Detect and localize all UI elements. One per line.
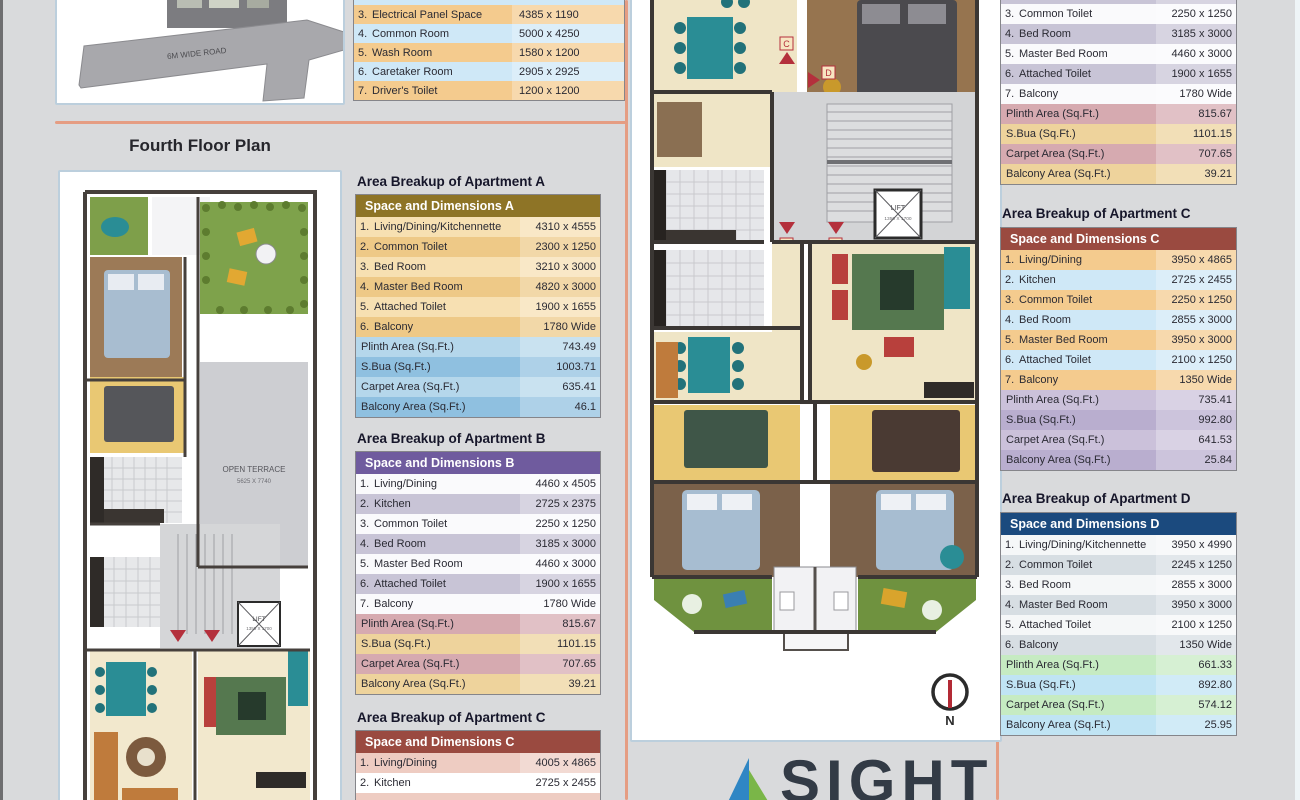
summary-row: Balcony Area (Sq.Ft.) 25.84 (1001, 450, 1236, 470)
sofa (94, 732, 118, 800)
table-row: 7. Balcony 1780 Wide (356, 594, 600, 614)
row-number: 5. (354, 47, 372, 59)
apartment-d-title: Area Breakup of Apartment D (1002, 491, 1191, 506)
open-terrace-label: OPEN TERRACE (223, 465, 286, 474)
row-label: Kitchen (374, 777, 520, 789)
kitchen-top (652, 170, 764, 242)
summary-label: S.Bua (Sq.Ft.) (356, 361, 520, 373)
row-number: 2. (356, 241, 374, 253)
summary-value: 574.12 (1156, 695, 1236, 715)
row-number: 5. (1001, 619, 1019, 631)
table-row: 1. Living/Dining 3950 x 4865 (1001, 250, 1236, 270)
table-row: 4. Master Bed Room 4820 x 3000 (356, 277, 600, 297)
lift-icon: LIFT 1350 X 1700 (238, 602, 280, 646)
summary-label: S.Bua (Sq.Ft.) (1001, 679, 1156, 691)
row-number: 7. (354, 85, 372, 97)
tv-unit (924, 382, 974, 398)
wood-floor (657, 102, 702, 157)
row-number: 1. (1001, 254, 1019, 266)
row-dimension: 2725 x 2375 (520, 494, 600, 514)
living-lower-right (810, 242, 977, 402)
row-dimension: 2725 x 2455 (1156, 270, 1236, 290)
summary-value: 1101.15 (1156, 124, 1236, 144)
sofa (656, 342, 678, 398)
table-row: 5. Master Bed Room 3950 x 3000 (1001, 330, 1236, 350)
summary-row: S.Bua (Sq.Ft.) 1101.15 (356, 634, 600, 654)
apartment-c-header: Space and Dimensions C (1001, 228, 1236, 250)
summary-value: 46.1 (520, 397, 600, 417)
row-dimension: 2725 x 2455 (520, 773, 600, 793)
cut-row (356, 793, 600, 800)
row-number: 1. (356, 757, 374, 769)
summary-row: Balcony Area (Sq.Ft.) 39.21 (1001, 164, 1236, 184)
row-number: 2. (356, 777, 374, 789)
row-label: Living/Dining (374, 478, 520, 490)
row-label: Electrical Panel Space (372, 9, 512, 21)
row-dimension: 1200 x 1200 (512, 81, 624, 100)
table-row: 1. Living/Dining/Kitchennette 3950 x 499… (1001, 535, 1236, 555)
summary-row: Balcony Area (Sq.Ft.) 39.21 (356, 674, 600, 694)
amenities-rows: 3. Electrical Panel Space 4385 x 1190 4.… (354, 5, 624, 100)
apartment-b-cont-summary: Plinth Area (Sq.Ft.) 815.67 S.Bua (Sq.Ft… (1001, 104, 1236, 184)
summary-value: 815.67 (1156, 104, 1236, 124)
summary-value: 635.41 (520, 377, 600, 397)
row-dimension: 2855 x 3000 (1156, 575, 1236, 595)
table-row: 4. Bed Room 3185 x 3000 (356, 534, 600, 554)
table-row: 2. Kitchen 2725 x 2455 (356, 773, 600, 793)
bench (288, 650, 308, 706)
row-label: Balcony (374, 321, 520, 333)
summary-value: 992.80 (1156, 410, 1236, 430)
table-row: 1. Living/Dining/Kitchennette 4310 x 455… (356, 217, 600, 237)
row-dimension: 3210 x 3000 (520, 257, 600, 277)
summary-value: 641.53 (1156, 430, 1236, 450)
table-row: 6. Attached Toilet 2100 x 1250 (1001, 350, 1236, 370)
bed-brown (872, 410, 960, 472)
row-label: Master Bed Room (374, 558, 520, 570)
apartment-d-header: Space and Dimensions D (1001, 513, 1236, 535)
row-label: Balcony (1019, 88, 1156, 100)
row-label: Balcony (374, 598, 520, 610)
apartment-c-rows: 1. Living/Dining 3950 x 4865 2. Kitchen … (1001, 250, 1236, 390)
logo-text: SIGHT (780, 752, 993, 800)
row-dimension: 1780 Wide (520, 594, 600, 614)
row-dimension: 4005 x 4865 (520, 753, 600, 773)
row-label: Attached Toilet (1019, 619, 1156, 631)
coffee-table (238, 692, 266, 720)
page-left-edge (0, 0, 3, 800)
row-number: 5. (356, 301, 374, 313)
summary-value: 25.95 (1156, 715, 1236, 735)
summary-row: Carpet Area (Sq.Ft.) 707.65 (356, 654, 600, 674)
apartment-d-table: Space and Dimensions D 1. Living/Dining/… (1000, 512, 1237, 736)
row-label: Kitchen (374, 498, 520, 510)
summary-value: 661.33 (1156, 655, 1236, 675)
apartment-b-summary: Plinth Area (Sq.Ft.) 815.67 S.Bua (Sq.Ft… (356, 614, 600, 694)
row-dimension: 3950 x 4990 (1156, 535, 1236, 555)
row-number: 1. (356, 221, 374, 233)
row-dimension: 1900 x 1655 (520, 574, 600, 594)
summary-value: 39.21 (520, 674, 600, 694)
accent-chair (832, 290, 848, 320)
amenities-table: 3. Electrical Panel Space 4385 x 1190 4.… (353, 0, 625, 101)
row-number: 4. (1001, 599, 1019, 611)
table-row: 2. Kitchen 2725 x 2375 (356, 494, 600, 514)
tv-unit (256, 772, 306, 788)
dining-table (688, 337, 730, 393)
table-row: 1. Living/Dining 4460 x 4505 (356, 474, 600, 494)
svg-text:1350 X 1700: 1350 X 1700 (884, 216, 912, 222)
table-row: 2. Common Toilet 2300 x 1250 (356, 237, 600, 257)
table-row: 7. Balcony 1350 Wide (1001, 370, 1236, 390)
row-dimension: 1350 Wide (1156, 635, 1236, 655)
summary-label: Carpet Area (Sq.Ft.) (356, 381, 520, 393)
apartment-c-summary: Plinth Area (Sq.Ft.) 735.41 S.Bua (Sq.Ft… (1001, 390, 1236, 470)
row-label: Balcony (1019, 374, 1156, 386)
table-row: 6. Caretaker Room 2905 x 2925 (354, 62, 624, 81)
row-number: 7. (1001, 88, 1019, 100)
row-label: Attached Toilet (1019, 68, 1156, 80)
row-label: Common Room (372, 28, 512, 40)
row-dimension: 1350 Wide (1156, 370, 1236, 390)
north-label: N (945, 713, 954, 728)
table-row: 5. Attached Toilet 2100 x 1250 (1001, 615, 1236, 635)
brochure-page: 6M WIDE ROAD 3. Electrical Panel Space 4… (0, 0, 1300, 800)
table-row: 1. Living/Dining 4005 x 4865 (356, 753, 600, 773)
summary-row: Plinth Area (Sq.Ft.) 735.41 (1001, 390, 1236, 410)
table-row: 3. Bed Room 2855 x 3000 (1001, 575, 1236, 595)
summary-label: Plinth Area (Sq.Ft.) (1001, 108, 1156, 120)
summary-value: 735.41 (1156, 390, 1236, 410)
open-terrace-dim: 5625 X 7740 (237, 479, 272, 485)
row-label: Common Toilet (374, 518, 520, 530)
svg-text:1350 X 1700: 1350 X 1700 (246, 626, 272, 631)
row-label: Living/Dining/Kitchennette (374, 221, 520, 233)
row-label: Kitchen (1019, 274, 1156, 286)
apartment-a-summary: Plinth Area (Sq.Ft.) 743.49 S.Bua (Sq.Ft… (356, 337, 600, 417)
row-number: 3. (356, 518, 374, 530)
row-dimension: 5000 x 4250 (512, 24, 624, 43)
apartment-a-header: Space and Dimensions A (356, 195, 600, 217)
accent-chair (832, 254, 848, 284)
row-dimension: 3950 x 3000 (1156, 330, 1236, 350)
logo-mark-icon (724, 758, 772, 800)
section-divider (55, 121, 628, 124)
row-dimension: 2300 x 1250 (520, 237, 600, 257)
row-label: Bed Room (1019, 579, 1156, 591)
summary-row: Carpet Area (Sq.Ft.) 641.53 (1001, 430, 1236, 450)
row-number: 3. (1001, 294, 1019, 306)
column-divider-left (625, 0, 628, 800)
row-number: 6. (356, 578, 374, 590)
summary-value: 815.67 (520, 614, 600, 634)
terrace-garden (200, 202, 308, 314)
summary-row: Balcony Area (Sq.Ft.) 46.1 (356, 397, 600, 417)
summary-row: Carpet Area (Sq.Ft.) 707.65 (1001, 144, 1236, 164)
summary-label: Plinth Area (Sq.Ft.) (356, 618, 520, 630)
fourth-floor-plan-image: OPEN TERRACE 5625 X 7740 LIFT (60, 172, 340, 800)
summary-value: 25.84 (1156, 450, 1236, 470)
kitchen-bottom (652, 250, 764, 328)
row-dimension: 2250 x 1250 (520, 514, 600, 534)
row-dimension: 4460 x 3000 (1156, 44, 1236, 64)
accent-chair (204, 677, 216, 727)
apartment-c-mid-rows: 1. Living/Dining 4005 x 4865 2. Kitchen … (356, 753, 600, 793)
summary-label: Carpet Area (Sq.Ft.) (356, 658, 520, 670)
table-row: 3. Common Toilet 2250 x 1250 (1001, 290, 1236, 310)
row-dimension: 1900 x 1655 (520, 297, 600, 317)
summary-label: Balcony Area (Sq.Ft.) (1001, 168, 1156, 180)
summary-label: S.Bua (Sq.Ft.) (1001, 414, 1156, 426)
bed-dark (104, 386, 174, 442)
compass-icon: N (933, 675, 967, 728)
coffee-table (880, 270, 914, 310)
table-row: 2. Common Toilet 2245 x 1250 (1001, 555, 1236, 575)
row-label: Common Toilet (1019, 294, 1156, 306)
apartment-c-mid-header: Space and Dimensions C (356, 731, 600, 753)
row-number: 1. (356, 478, 374, 490)
site-plan-box: 6M WIDE ROAD (55, 0, 345, 105)
row-number: 5. (1001, 48, 1019, 60)
row-number: 7. (1001, 374, 1019, 386)
apartment-c-mid-title: Area Breakup of Apartment C (357, 710, 546, 725)
summary-value: 707.65 (520, 654, 600, 674)
row-dimension: 3185 x 3000 (520, 534, 600, 554)
row-dimension: 4460 x 3000 (520, 554, 600, 574)
summary-label: S.Bua (Sq.Ft.) (1001, 128, 1156, 140)
living-room-right (198, 650, 310, 800)
north-needle (948, 680, 952, 708)
row-number: 3. (356, 261, 374, 273)
stair-hall: LIFT 1350 X 1700 (160, 524, 280, 648)
table-row: 4. Bed Room 3185 x 3000 (1001, 24, 1236, 44)
summary-label: Balcony Area (Sq.Ft.) (1001, 719, 1156, 731)
row-dimension: 2855 x 3000 (1156, 310, 1236, 330)
table-row: 7. Balcony 1780 Wide (1001, 84, 1236, 104)
row-dimension: 2245 x 1250 (1156, 555, 1236, 575)
summary-label: Carpet Area (Sq.Ft.) (1001, 699, 1156, 711)
summary-value: 1003.71 (520, 357, 600, 377)
summary-row: S.Bua (Sq.Ft.) 992.80 (1001, 410, 1236, 430)
sofa (122, 788, 178, 800)
table-row: 5. Master Bed Room 4460 x 3000 (1001, 44, 1236, 64)
page-title: Fourth Floor Plan (55, 136, 345, 156)
table-row: 6. Balcony 1350 Wide (1001, 635, 1236, 655)
bench (944, 247, 970, 309)
row-dimension: 3950 x 4865 (1156, 250, 1236, 270)
svg-text:LIFT: LIFT (252, 616, 265, 623)
table-row: 3. Electrical Panel Space 4385 x 1190 (354, 5, 624, 24)
table-row: 3. Common Toilet 2250 x 1250 (1001, 4, 1236, 24)
kitchen-1 (90, 457, 182, 523)
row-dimension: 3185 x 3000 (1156, 24, 1236, 44)
row-number: 1. (1001, 539, 1019, 551)
summary-label: Balcony Area (Sq.Ft.) (356, 678, 520, 690)
small-balcony (784, 632, 848, 650)
apartment-d-rows: 1. Living/Dining/Kitchennette 3950 x 499… (1001, 535, 1236, 655)
row-number: 7. (356, 598, 374, 610)
row-number: 3. (1001, 579, 1019, 591)
row-label: Attached Toilet (374, 578, 520, 590)
terrace-table (256, 244, 276, 264)
apartment-c-table: Space and Dimensions C 1. Living/Dining … (1000, 227, 1237, 471)
bed-green (684, 410, 768, 468)
table-row: 5. Wash Room 1580 x 1200 (354, 43, 624, 62)
row-number: 2. (1001, 274, 1019, 286)
apartment-b-cont-rows: 2. Kitchen 2725 x 2375 3. Common Toilet … (1001, 0, 1236, 104)
row-label: Master Bed Room (1019, 334, 1156, 346)
site-plan-image: 6M WIDE ROAD (57, 0, 343, 103)
row-dimension: 2100 x 1250 (1156, 615, 1236, 635)
row-number: 5. (356, 558, 374, 570)
row-dimension: 4385 x 1190 (512, 5, 624, 24)
apartment-c-mid-table: Space and Dimensions C 1. Living/Dining … (355, 730, 601, 800)
dining-table (687, 17, 733, 79)
row-label: Wash Room (372, 47, 512, 59)
row-number: 3. (354, 9, 372, 21)
apartment-a-title: Area Breakup of Apartment A (357, 174, 545, 189)
lift-icon: LIFT 1350 X 1700 (875, 190, 921, 238)
row-number: 6. (356, 321, 374, 333)
summary-row: Plinth Area (Sq.Ft.) 661.33 (1001, 655, 1236, 675)
row-label: Common Toilet (1019, 559, 1156, 571)
row-number: 6. (1001, 354, 1019, 366)
row-number: 4. (354, 28, 372, 40)
table-row: 7. Driver's Toilet 1200 x 1200 (354, 81, 624, 100)
row-label: Living/Dining (1019, 254, 1156, 266)
row-number: 6. (1001, 639, 1019, 651)
apartment-d-summary: Plinth Area (Sq.Ft.) 661.33 S.Bua (Sq.Ft… (1001, 655, 1236, 735)
table-row: 4. Common Room 5000 x 4250 (354, 24, 624, 43)
site-road (79, 20, 343, 101)
summary-row: Plinth Area (Sq.Ft.) 743.49 (356, 337, 600, 357)
summary-row: S.Bua (Sq.Ft.) 1101.15 (1001, 124, 1236, 144)
summary-row: S.Bua (Sq.Ft.) 892.80 (1001, 675, 1236, 695)
row-dimension: 1780 Wide (1156, 84, 1236, 104)
row-number: 4. (1001, 314, 1019, 326)
row-dimension: 2250 x 1250 (1156, 290, 1236, 310)
row-number: 3. (1001, 8, 1019, 20)
dining-table (106, 662, 146, 716)
apartment-b-cont-table: 2. Kitchen 2725 x 2375 3. Common Toilet … (1000, 0, 1237, 185)
row-label: Bed Room (1019, 28, 1156, 40)
row-number: 2. (1001, 559, 1019, 571)
summary-row: Plinth Area (Sq.Ft.) 815.67 (356, 614, 600, 634)
row-dimension: 1780 Wide (520, 317, 600, 337)
row-label: Bed Room (374, 538, 520, 550)
table-row: 5. Master Bed Room 4460 x 3000 (356, 554, 600, 574)
apartment-c-title: Area Breakup of Apartment C (1002, 206, 1191, 221)
row-number: 2. (356, 498, 374, 510)
row-dimension: 2905 x 2925 (512, 62, 624, 81)
table-row: 5. Attached Toilet 1900 x 1655 (356, 297, 600, 317)
row-number: 5. (1001, 334, 1019, 346)
table-row: 2. Kitchen 2725 x 2455 (1001, 270, 1236, 290)
row-label: Common Toilet (1019, 8, 1156, 20)
svg-text:LIFT: LIFT (891, 205, 906, 212)
row-dimension: 4460 x 4505 (520, 474, 600, 494)
summary-label: Plinth Area (Sq.Ft.) (356, 341, 520, 353)
summary-label: Carpet Area (Sq.Ft.) (1001, 148, 1156, 160)
accent-chair (884, 337, 914, 357)
table-row: 6. Attached Toilet 1900 x 1655 (1001, 64, 1236, 84)
row-number: 4. (356, 538, 374, 550)
row-label: Master Bed Room (1019, 48, 1156, 60)
row-label: Master Bed Room (374, 281, 520, 293)
summary-value: 707.65 (1156, 144, 1236, 164)
summary-label: Plinth Area (Sq.Ft.) (1001, 394, 1156, 406)
table-row: 6. Attached Toilet 1900 x 1655 (356, 574, 600, 594)
row-number: 4. (1001, 28, 1019, 40)
apartment-a-table: Space and Dimensions A 1. Living/Dining/… (355, 194, 601, 418)
stair-core: LIFT 1350 X 1700 (772, 92, 977, 242)
apartment-b-rows: 1. Living/Dining 4460 x 4505 2. Kitchen … (356, 474, 600, 614)
table-row: 6. Balcony 1780 Wide (356, 317, 600, 337)
summary-label: Carpet Area (Sq.Ft.) (1001, 434, 1156, 446)
summary-value: 1101.15 (520, 634, 600, 654)
row-label: Attached Toilet (1019, 354, 1156, 366)
row-label: Living/Dining/Kitchennette (1019, 539, 1156, 551)
row-dimension: 4820 x 3000 (520, 277, 600, 297)
row-label: Driver's Toilet (372, 85, 512, 97)
apartment-b-title: Area Breakup of Apartment B (357, 431, 546, 446)
summary-label: Balcony Area (Sq.Ft.) (1001, 454, 1156, 466)
row-dimension: 2100 x 1250 (1156, 350, 1236, 370)
table-row: 4. Master Bed Room 3950 x 3000 (1001, 595, 1236, 615)
table-row: 3. Bed Room 3210 x 3000 (356, 257, 600, 277)
row-label: Bed Room (1019, 314, 1156, 326)
summary-value: 39.21 (1156, 164, 1236, 184)
summary-row: Carpet Area (Sq.Ft.) 574.12 (1001, 695, 1236, 715)
summary-label: Balcony Area (Sq.Ft.) (356, 401, 520, 413)
table-row: 4. Bed Room 2855 x 3000 (1001, 310, 1236, 330)
svg-text:D: D (825, 68, 832, 78)
row-dimension: 4310 x 4555 (520, 217, 600, 237)
brand-logo: SIGHT (724, 752, 993, 800)
row-number: 4. (356, 281, 374, 293)
row-label: Caretaker Room (372, 66, 512, 78)
living-room-left (90, 650, 192, 800)
svg-text:C: C (783, 39, 790, 49)
table-row: 3. Common Toilet 2250 x 1250 (356, 514, 600, 534)
row-number: 6. (1001, 68, 1019, 80)
row-dimension: 1900 x 1655 (1156, 64, 1236, 84)
summary-label: Plinth Area (Sq.Ft.) (1001, 659, 1156, 671)
summary-row: S.Bua (Sq.Ft.) 1003.71 (356, 357, 600, 377)
summary-row: Plinth Area (Sq.Ft.) 815.67 (1001, 104, 1236, 124)
row-label: Bed Room (374, 261, 520, 273)
summary-row: Balcony Area (Sq.Ft.) 25.95 (1001, 715, 1236, 735)
summary-row: Carpet Area (Sq.Ft.) 635.41 (356, 377, 600, 397)
summary-value: 743.49 (520, 337, 600, 357)
row-number: 6. (354, 66, 372, 78)
apartment-b-header: Space and Dimensions B (356, 452, 600, 474)
row-dimension: 1580 x 1200 (512, 43, 624, 62)
row-label: Attached Toilet (374, 301, 520, 313)
fourth-floor-plan-box: OPEN TERRACE 5625 X 7740 LIFT (58, 170, 342, 800)
row-label: Living/Dining (374, 757, 520, 769)
row-dimension: 3950 x 3000 (1156, 595, 1236, 615)
apartment-b-table: Space and Dimensions B 1. Living/Dining … (355, 451, 601, 695)
page-right-edge (1295, 0, 1300, 800)
row-label: Master Bed Room (1019, 599, 1156, 611)
fifth-floor-plan-image: LIFT 1350 X 1700 C D B A (632, 0, 1000, 740)
fifth-floor-plan-box: LIFT 1350 X 1700 C D B A (630, 0, 1002, 742)
row-label: Balcony (1019, 639, 1156, 651)
apartment-a-rows: 1. Living/Dining/Kitchennette 4310 x 455… (356, 217, 600, 337)
row-label: Common Toilet (374, 241, 520, 253)
summary-label: S.Bua (Sq.Ft.) (356, 638, 520, 650)
